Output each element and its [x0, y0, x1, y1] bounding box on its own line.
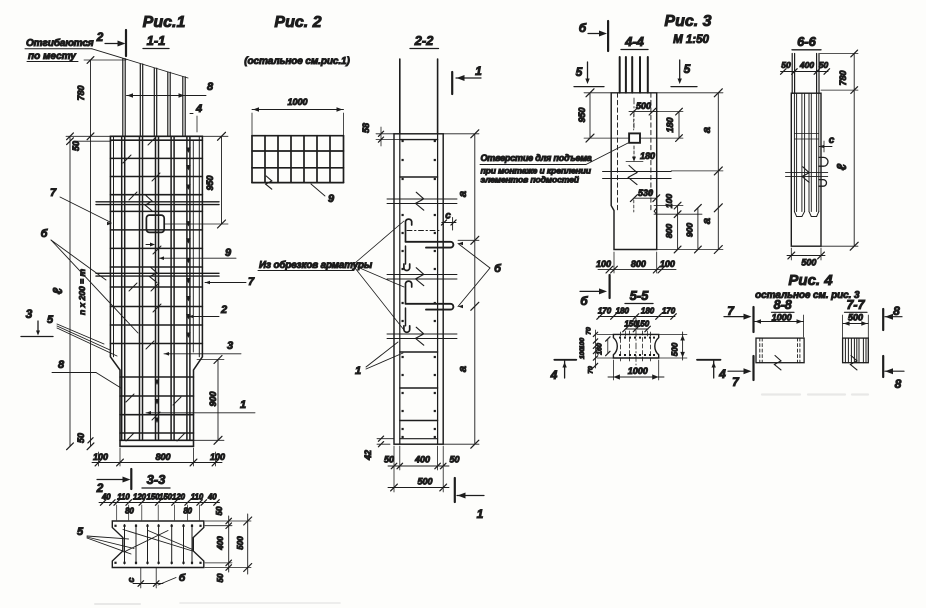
svg-text:1: 1	[475, 64, 482, 78]
svg-text:530: 530	[638, 188, 653, 198]
svg-text:б: б	[494, 263, 502, 275]
svg-text:50: 50	[449, 455, 459, 465]
svg-text:120: 120	[172, 493, 186, 502]
svg-text:1: 1	[477, 507, 484, 521]
svg-text:Рис. 4: Рис. 4	[788, 272, 833, 289]
svg-text:n x 200 = m: n x 200 = m	[77, 269, 87, 316]
svg-text:9: 9	[328, 193, 335, 205]
svg-text:2: 2	[220, 304, 227, 316]
svg-text:1: 1	[240, 399, 246, 411]
svg-text:900: 900	[685, 223, 695, 237]
svg-text:2: 2	[96, 30, 104, 44]
svg-text:50: 50	[76, 433, 86, 443]
svg-text:80: 80	[125, 507, 134, 516]
svg-text:500: 500	[848, 313, 863, 323]
svg-text:1000: 1000	[287, 97, 307, 107]
svg-text:400: 400	[799, 60, 814, 70]
svg-text:a: a	[701, 127, 713, 133]
svg-text:180: 180	[641, 307, 655, 316]
svg-text:3: 3	[26, 307, 33, 321]
svg-text:б: б	[179, 572, 186, 584]
svg-text:5: 5	[47, 314, 54, 326]
svg-text:Отгибаются: Отгибаются	[26, 37, 94, 49]
svg-text:500: 500	[236, 536, 245, 550]
svg-text:c: c	[829, 135, 835, 146]
svg-text:б: б	[579, 21, 587, 35]
svg-text:8: 8	[207, 81, 214, 93]
svg-text:a: a	[457, 191, 469, 197]
svg-text:7: 7	[248, 276, 255, 288]
svg-text:800: 800	[664, 224, 674, 238]
svg-text:3: 3	[227, 340, 233, 352]
svg-text:б: б	[580, 294, 588, 308]
svg-text:по месту: по месту	[28, 51, 76, 62]
svg-text:Отверстие для подъема: Отверстие для подъема	[481, 153, 592, 163]
svg-text:Рис.1: Рис.1	[143, 14, 186, 31]
svg-text:5-5: 5-5	[630, 288, 650, 303]
svg-text:950: 950	[205, 175, 215, 190]
svg-text:ℓ: ℓ	[834, 163, 849, 170]
svg-text:a: a	[701, 218, 713, 224]
svg-text:100: 100	[210, 452, 225, 462]
svg-text:500: 500	[636, 101, 651, 111]
svg-text:3-3: 3-3	[147, 472, 167, 487]
svg-text:50: 50	[71, 141, 81, 151]
svg-text:8-8: 8-8	[774, 298, 792, 312]
svg-text:780: 780	[838, 70, 848, 85]
svg-text:5: 5	[77, 526, 84, 538]
svg-text:4: 4	[195, 103, 202, 115]
svg-text:50: 50	[215, 506, 224, 515]
svg-text:Рис. 3: Рис. 3	[664, 13, 711, 30]
svg-text:40: 40	[207, 493, 217, 502]
svg-text:8: 8	[893, 304, 900, 318]
svg-text:М 1:50: М 1:50	[673, 34, 709, 46]
svg-text:42: 42	[363, 450, 373, 461]
svg-text:50: 50	[384, 455, 394, 465]
svg-text:170: 170	[662, 307, 676, 316]
svg-text:500: 500	[671, 342, 680, 356]
svg-text:c: c	[126, 577, 136, 582]
svg-text:8: 8	[895, 377, 902, 391]
svg-text:500: 500	[417, 477, 432, 487]
svg-text:180: 180	[665, 117, 675, 132]
svg-text:1: 1	[355, 365, 361, 377]
svg-text:2-2: 2-2	[414, 33, 435, 48]
svg-text:ℓ: ℓ	[50, 287, 65, 294]
svg-text:800: 800	[631, 259, 646, 269]
svg-text:б: б	[41, 228, 49, 240]
svg-text:4: 4	[718, 367, 726, 381]
svg-text:170: 170	[598, 307, 612, 316]
svg-text:5: 5	[576, 65, 583, 79]
svg-text:4: 4	[550, 368, 558, 382]
svg-text:1000: 1000	[628, 366, 648, 376]
svg-text:Рис. 2: Рис. 2	[274, 14, 321, 31]
svg-text:400: 400	[216, 536, 225, 551]
svg-text:остальное см. рис. 3: остальное см. рис. 3	[755, 290, 860, 301]
svg-text:70: 70	[586, 327, 593, 335]
svg-text:7-7: 7-7	[846, 298, 865, 312]
svg-text:4-4: 4-4	[624, 34, 645, 49]
svg-text:900: 900	[208, 391, 218, 406]
svg-text:7: 7	[50, 187, 57, 199]
svg-text:9: 9	[225, 247, 232, 259]
svg-text:5: 5	[684, 62, 691, 76]
svg-text:80: 80	[183, 507, 192, 516]
svg-text:50: 50	[216, 573, 225, 582]
svg-text:a: a	[457, 366, 469, 372]
svg-text:180: 180	[640, 151, 655, 161]
svg-text:500: 500	[801, 258, 816, 268]
svg-text:100: 100	[664, 194, 674, 208]
svg-text:400: 400	[414, 455, 430, 465]
svg-text:100: 100	[93, 452, 108, 462]
svg-text:58: 58	[361, 123, 371, 133]
svg-text:780: 780	[76, 85, 86, 100]
svg-text:(остальное см.рис.1): (остальное см.рис.1)	[244, 56, 350, 67]
svg-text:180: 180	[616, 307, 630, 316]
svg-text:100: 100	[660, 259, 675, 269]
svg-text:6-6: 6-6	[797, 34, 817, 49]
svg-text:1000: 1000	[772, 313, 792, 323]
svg-text:100: 100	[596, 259, 611, 269]
svg-text:1-1: 1-1	[147, 33, 166, 48]
svg-text:950: 950	[577, 107, 587, 122]
svg-text:100: 100	[579, 348, 586, 360]
svg-text:800: 800	[155, 452, 170, 462]
svg-text:100: 100	[579, 338, 586, 350]
svg-text:8: 8	[58, 359, 65, 371]
svg-text:элементов подмостей: элементов подмостей	[481, 175, 580, 185]
